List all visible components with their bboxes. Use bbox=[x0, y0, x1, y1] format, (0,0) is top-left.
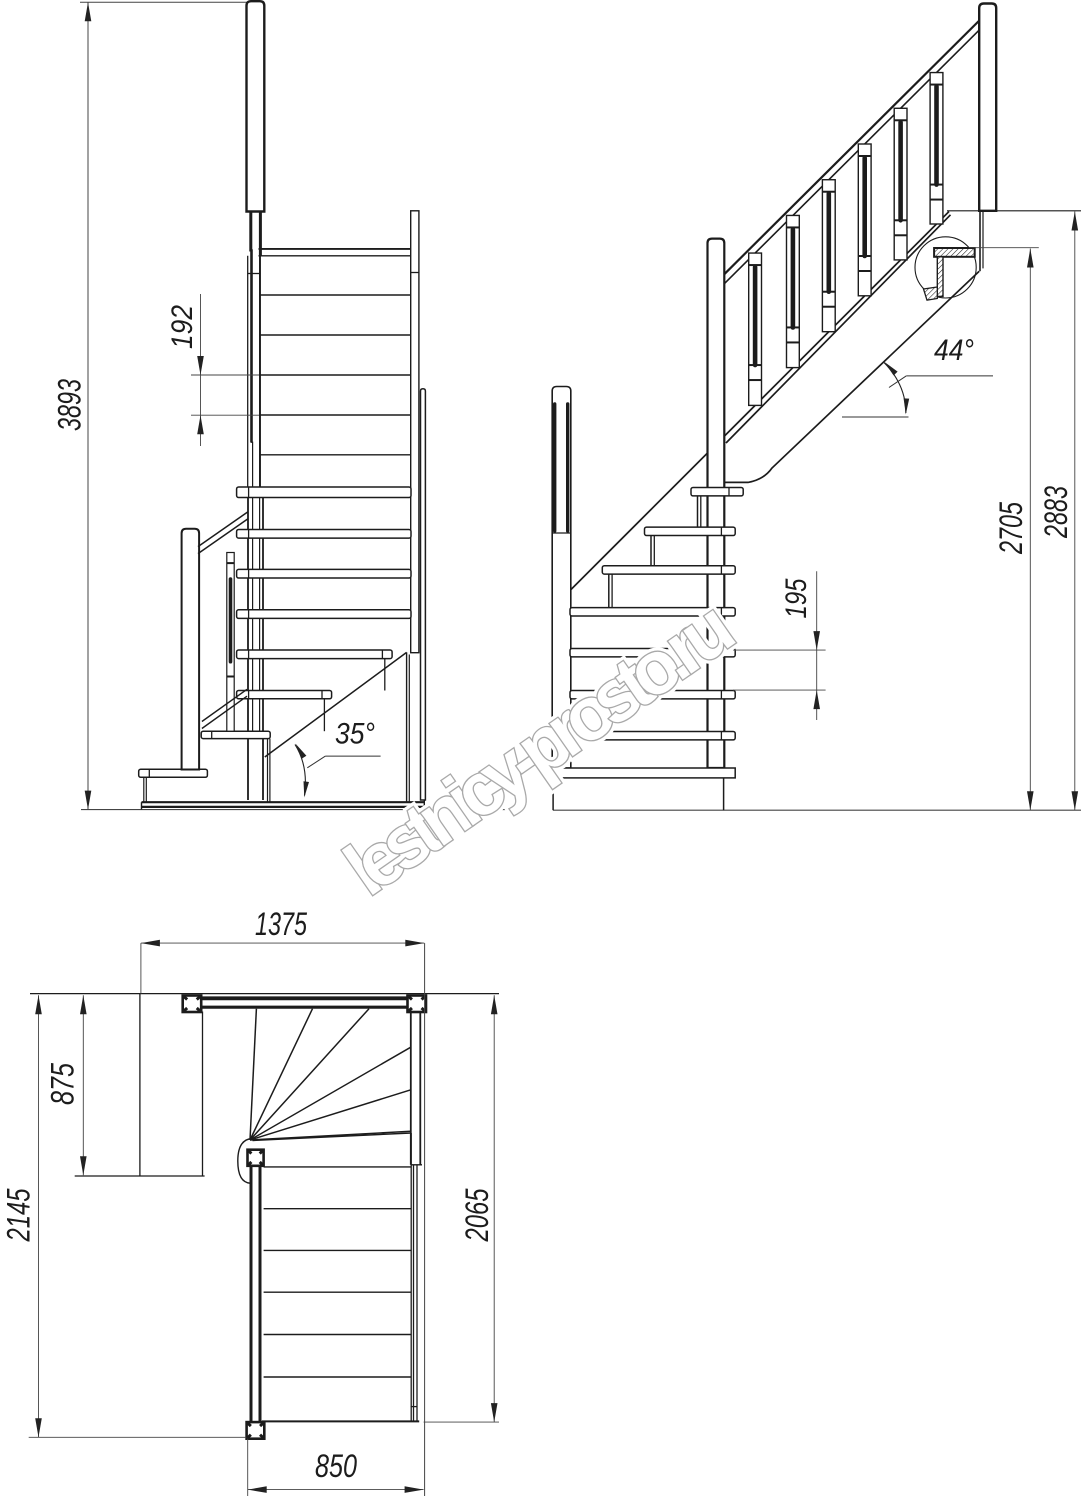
svg-text:44°: 44° bbox=[934, 334, 974, 367]
svg-text:3893: 3893 bbox=[52, 379, 88, 431]
svg-text:2065: 2065 bbox=[459, 1188, 495, 1242]
svg-text:875: 875 bbox=[45, 1063, 81, 1105]
svg-text:2145: 2145 bbox=[1, 1188, 37, 1242]
svg-text:2883: 2883 bbox=[1038, 486, 1074, 539]
svg-text:35°: 35° bbox=[335, 718, 375, 751]
svg-text:2705: 2705 bbox=[993, 502, 1029, 555]
svg-text:850: 850 bbox=[315, 1448, 357, 1484]
svg-text:1375: 1375 bbox=[255, 906, 307, 942]
svg-text:192: 192 bbox=[166, 305, 199, 349]
svg-text:195: 195 bbox=[780, 578, 813, 618]
